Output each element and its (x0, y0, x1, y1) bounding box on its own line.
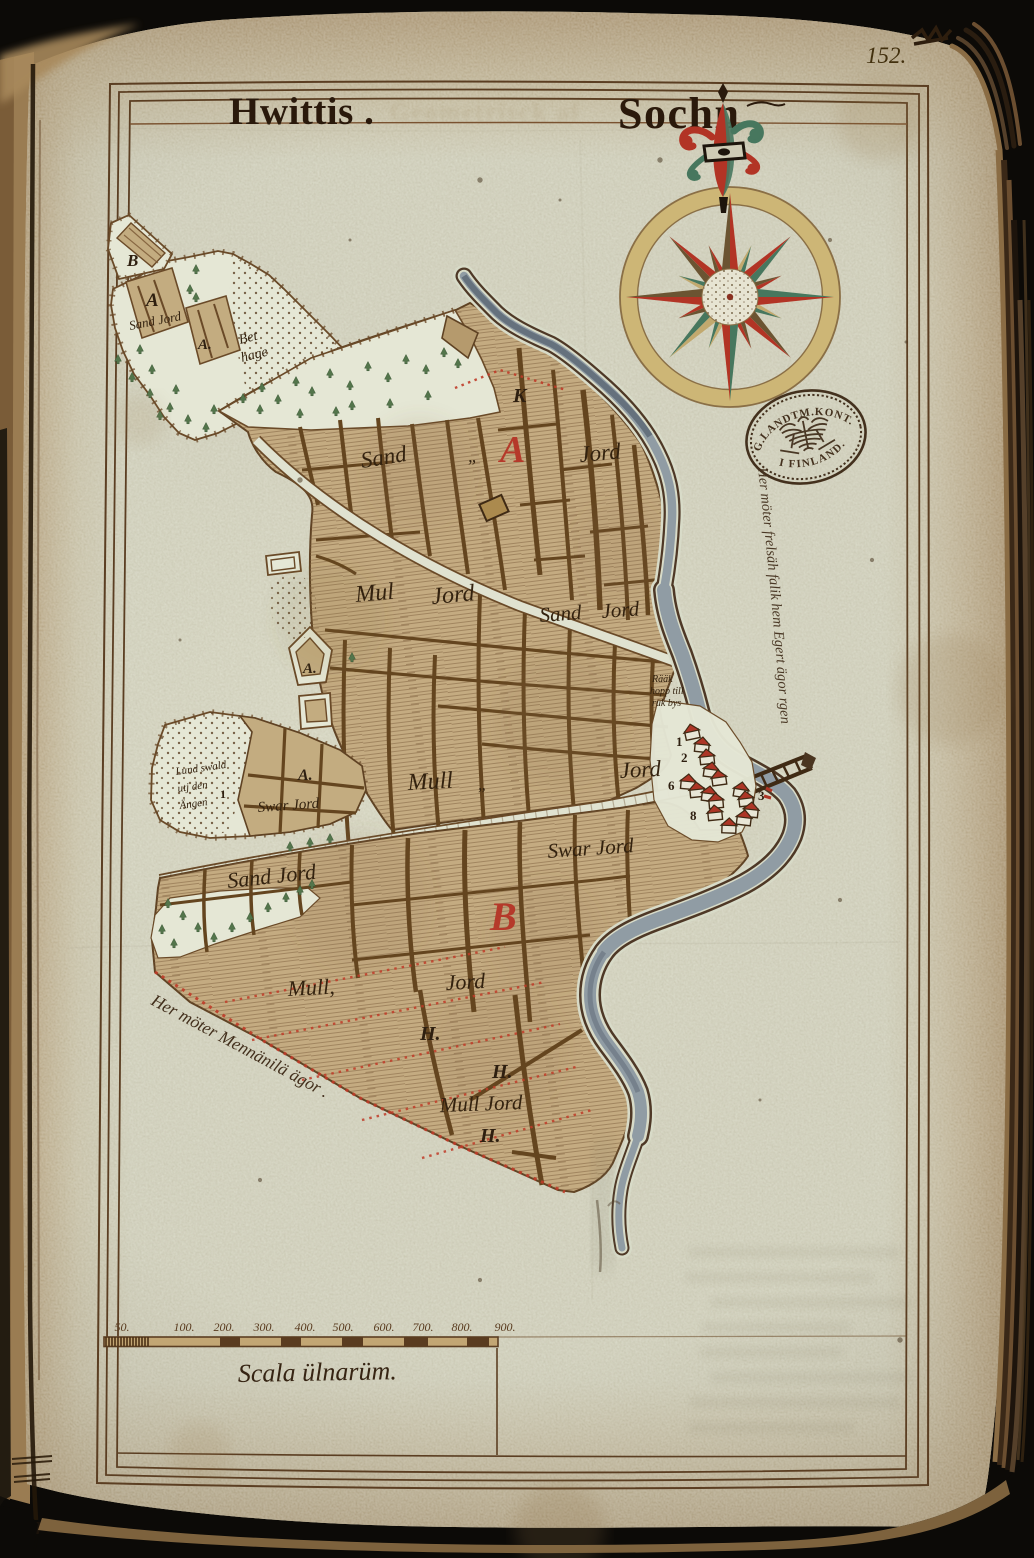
svg-text:hopp till: hopp till (650, 686, 684, 697)
svg-text:Jord: Jord (619, 756, 662, 783)
svg-text:800.: 800. (452, 1320, 473, 1334)
svg-text:152.: 152. (866, 43, 906, 68)
svg-text:50.: 50. (115, 1320, 130, 1334)
svg-text:Jord: Jord (578, 438, 622, 467)
svg-text:Jord: Jord (601, 596, 641, 623)
svg-text:Mull Jord: Mull Jord (438, 1090, 523, 1117)
svg-text:A: A (145, 290, 159, 311)
svg-text:A: A (498, 429, 525, 471)
svg-text:Sand: Sand (539, 600, 583, 627)
svg-text:900.: 900. (495, 1320, 516, 1334)
svg-text:100.: 100. (174, 1320, 195, 1334)
svg-text:2: 2 (681, 750, 688, 765)
svg-text:Geometrisck af: Geometrisck af (390, 99, 581, 126)
svg-text:Scala ülnarüm.: Scala ülnarüm. (238, 1356, 397, 1388)
svg-text:H.: H. (419, 1023, 441, 1045)
svg-text:700.: 700. (413, 1320, 434, 1334)
svg-text:500.: 500. (333, 1320, 354, 1334)
svg-text:3: 3 (758, 788, 765, 803)
svg-text:Hwittis .: Hwittis . (229, 90, 374, 133)
svg-text:„: „ (468, 446, 478, 466)
svg-text:8: 8 (690, 808, 697, 823)
svg-text:Mull,: Mull, (286, 974, 335, 1001)
svg-text:300.: 300. (253, 1320, 275, 1334)
svg-text:1: 1 (676, 734, 683, 749)
svg-text:B: B (489, 894, 517, 939)
svg-text:H.: H. (479, 1125, 501, 1147)
svg-text:H.: H. (491, 1061, 513, 1083)
svg-text:K: K (512, 385, 528, 407)
svg-text:400.: 400. (295, 1320, 316, 1334)
svg-text:1: 1 (220, 787, 226, 801)
svg-text:Rääk: Rääk (651, 674, 673, 685)
svg-text:A.: A. (197, 337, 212, 353)
svg-text:Mul: Mul (353, 579, 395, 608)
svg-text:Mull: Mull (406, 768, 454, 796)
svg-text:200.: 200. (214, 1320, 235, 1334)
svg-text:Jord: Jord (430, 580, 476, 610)
svg-text:Jord: Jord (445, 968, 487, 995)
svg-text:600.: 600. (374, 1320, 395, 1334)
svg-text:A.: A. (297, 767, 313, 784)
svg-text:B: B (126, 251, 138, 270)
svg-text:ruk bys: ruk bys (652, 698, 681, 709)
svg-text:„: „ (478, 775, 487, 794)
svg-text:6: 6 (668, 778, 675, 793)
